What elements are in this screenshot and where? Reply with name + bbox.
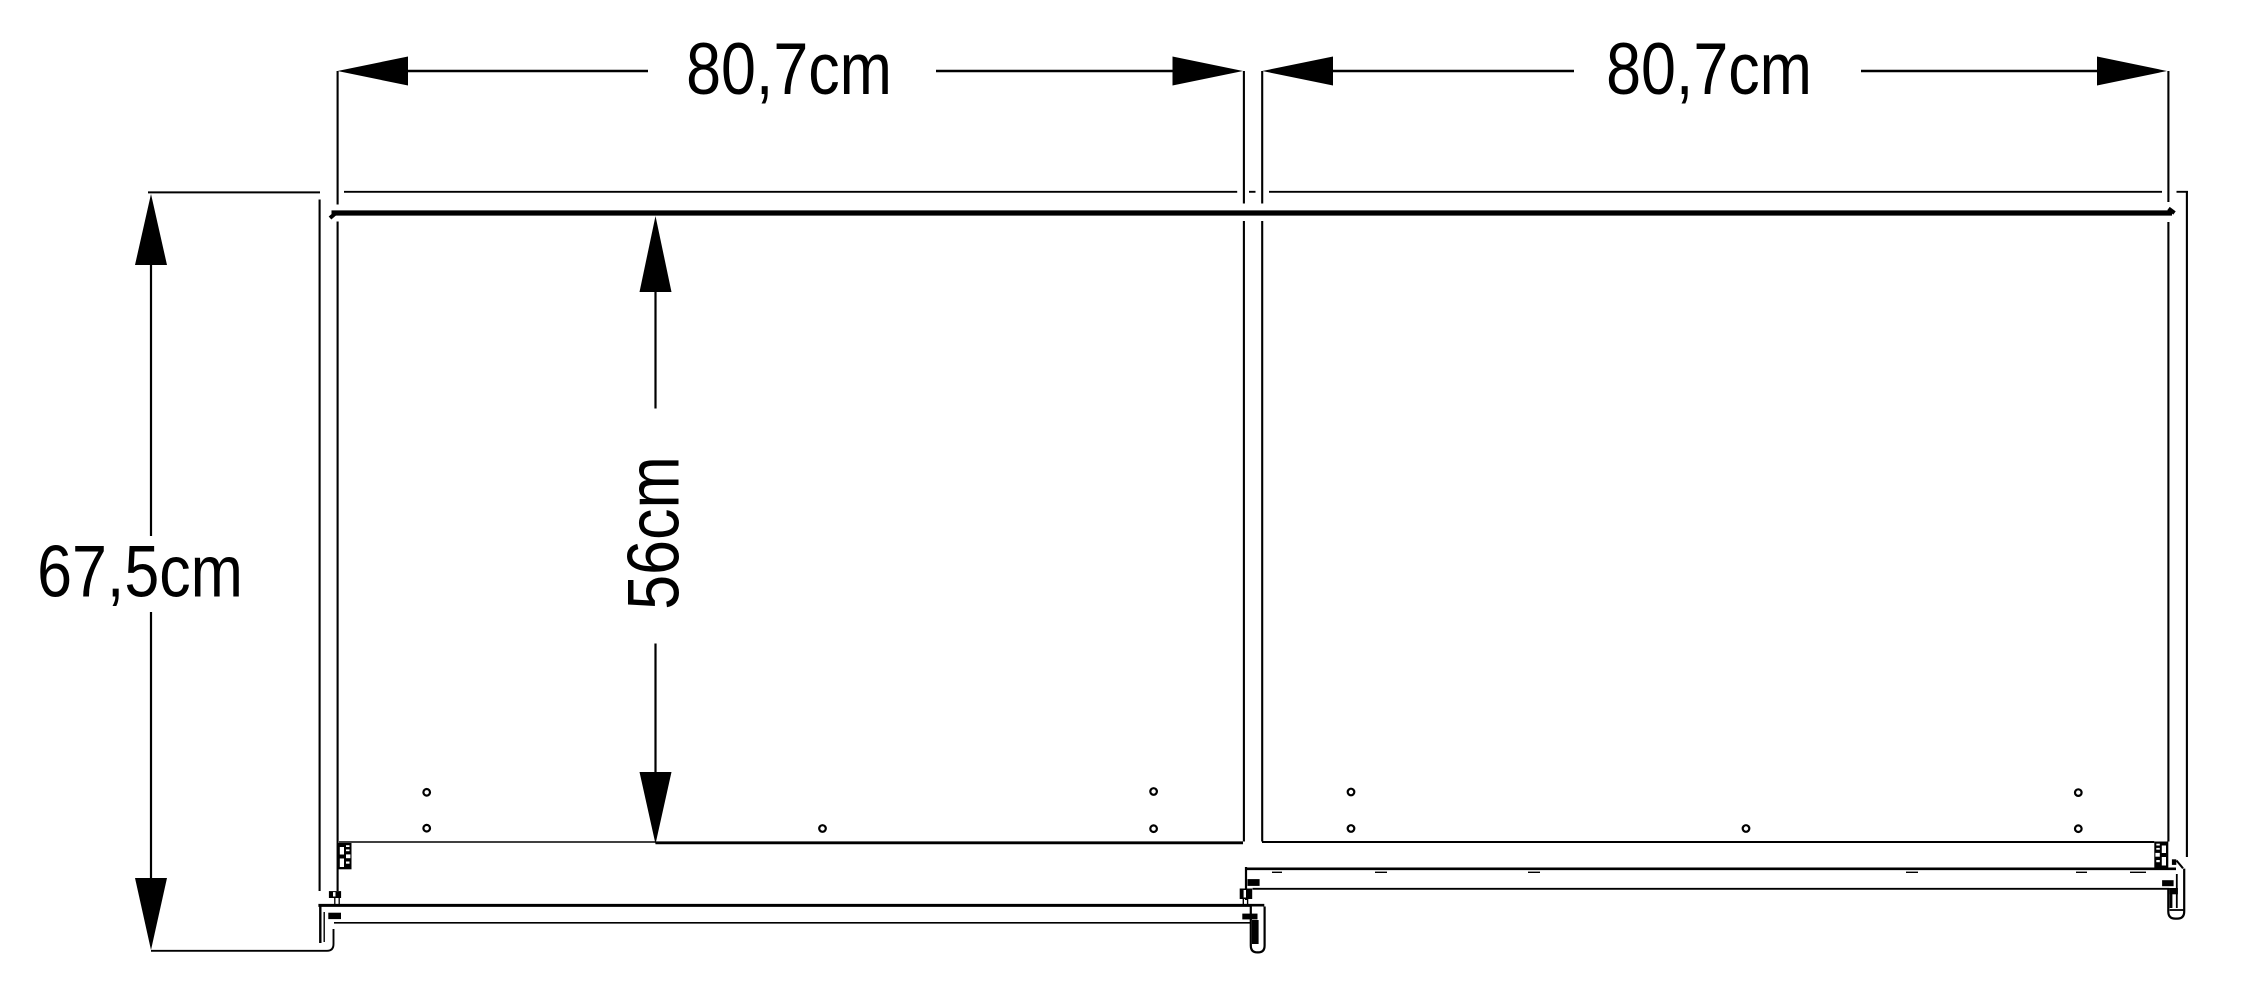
svg-text:67,5cm: 67,5cm — [37, 531, 243, 612]
svg-text:80,7cm: 80,7cm — [1606, 29, 1812, 110]
svg-text:80,7cm: 80,7cm — [686, 29, 892, 110]
svg-text:56cm: 56cm — [613, 456, 694, 610]
